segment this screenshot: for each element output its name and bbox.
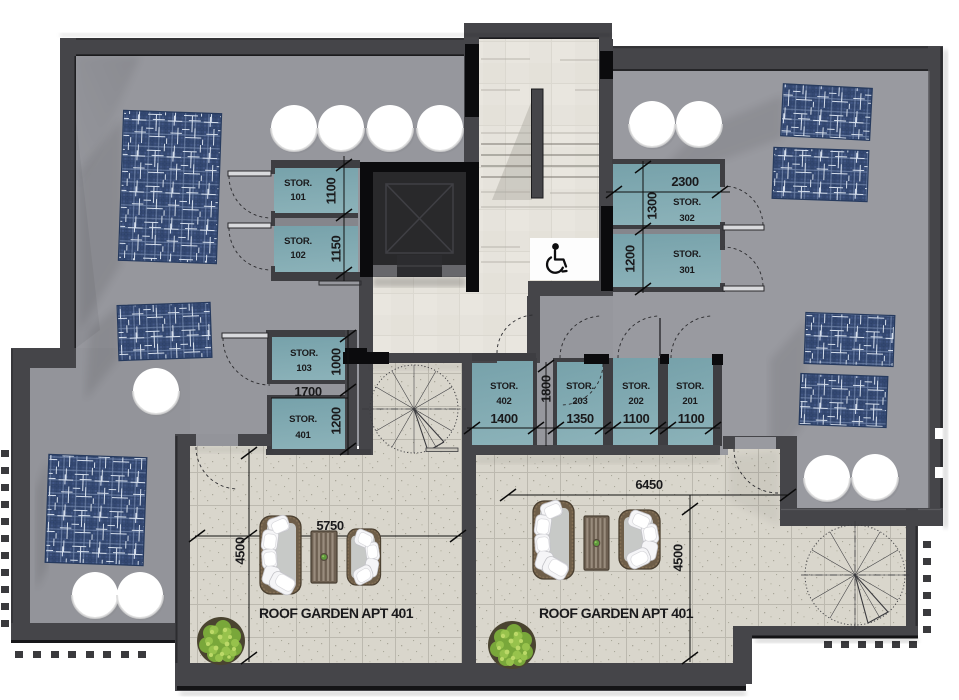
svg-text:201: 201 [682, 396, 698, 407]
svg-text:STOR.: STOR. [290, 348, 318, 359]
svg-text:STOR.: STOR. [673, 197, 701, 208]
svg-text:STOR.: STOR. [566, 381, 594, 392]
svg-text:1100: 1100 [623, 411, 650, 426]
svg-text:STOR.: STOR. [284, 178, 312, 189]
svg-text:202: 202 [628, 396, 643, 407]
svg-text:1700: 1700 [294, 384, 321, 399]
svg-text:1300: 1300 [644, 192, 659, 219]
svg-text:301: 301 [679, 265, 695, 276]
svg-text:103: 103 [296, 363, 311, 374]
svg-text:101: 101 [290, 192, 306, 203]
svg-text:1000: 1000 [328, 348, 343, 375]
svg-text:6450: 6450 [635, 477, 662, 492]
svg-text:1200: 1200 [622, 245, 637, 272]
svg-text:1150: 1150 [328, 236, 343, 263]
svg-text:102: 102 [290, 250, 305, 261]
svg-text:STOR.: STOR. [289, 414, 317, 425]
svg-text:STOR.: STOR. [490, 381, 518, 392]
svg-text:401: 401 [295, 430, 311, 441]
svg-text:ROOF GARDEN APT 401: ROOF GARDEN APT 401 [259, 605, 414, 621]
svg-text:STOR.: STOR. [673, 249, 701, 260]
svg-text:302: 302 [679, 213, 694, 224]
svg-text:1100: 1100 [323, 178, 338, 205]
svg-text:1350: 1350 [566, 411, 593, 426]
svg-text:402: 402 [496, 396, 511, 407]
svg-text:1200: 1200 [328, 407, 343, 434]
svg-text:203: 203 [572, 396, 587, 407]
svg-text:2300: 2300 [671, 174, 698, 189]
svg-text:ROOF GARDEN APT 401: ROOF GARDEN APT 401 [539, 605, 694, 621]
svg-text:4500: 4500 [670, 544, 685, 571]
svg-text:1400: 1400 [490, 411, 517, 426]
svg-text:4500: 4500 [232, 537, 247, 564]
svg-text:STOR.: STOR. [622, 381, 650, 392]
svg-text:STOR.: STOR. [284, 236, 312, 247]
svg-text:STOR.: STOR. [676, 381, 704, 392]
svg-text:1100: 1100 [678, 411, 705, 426]
